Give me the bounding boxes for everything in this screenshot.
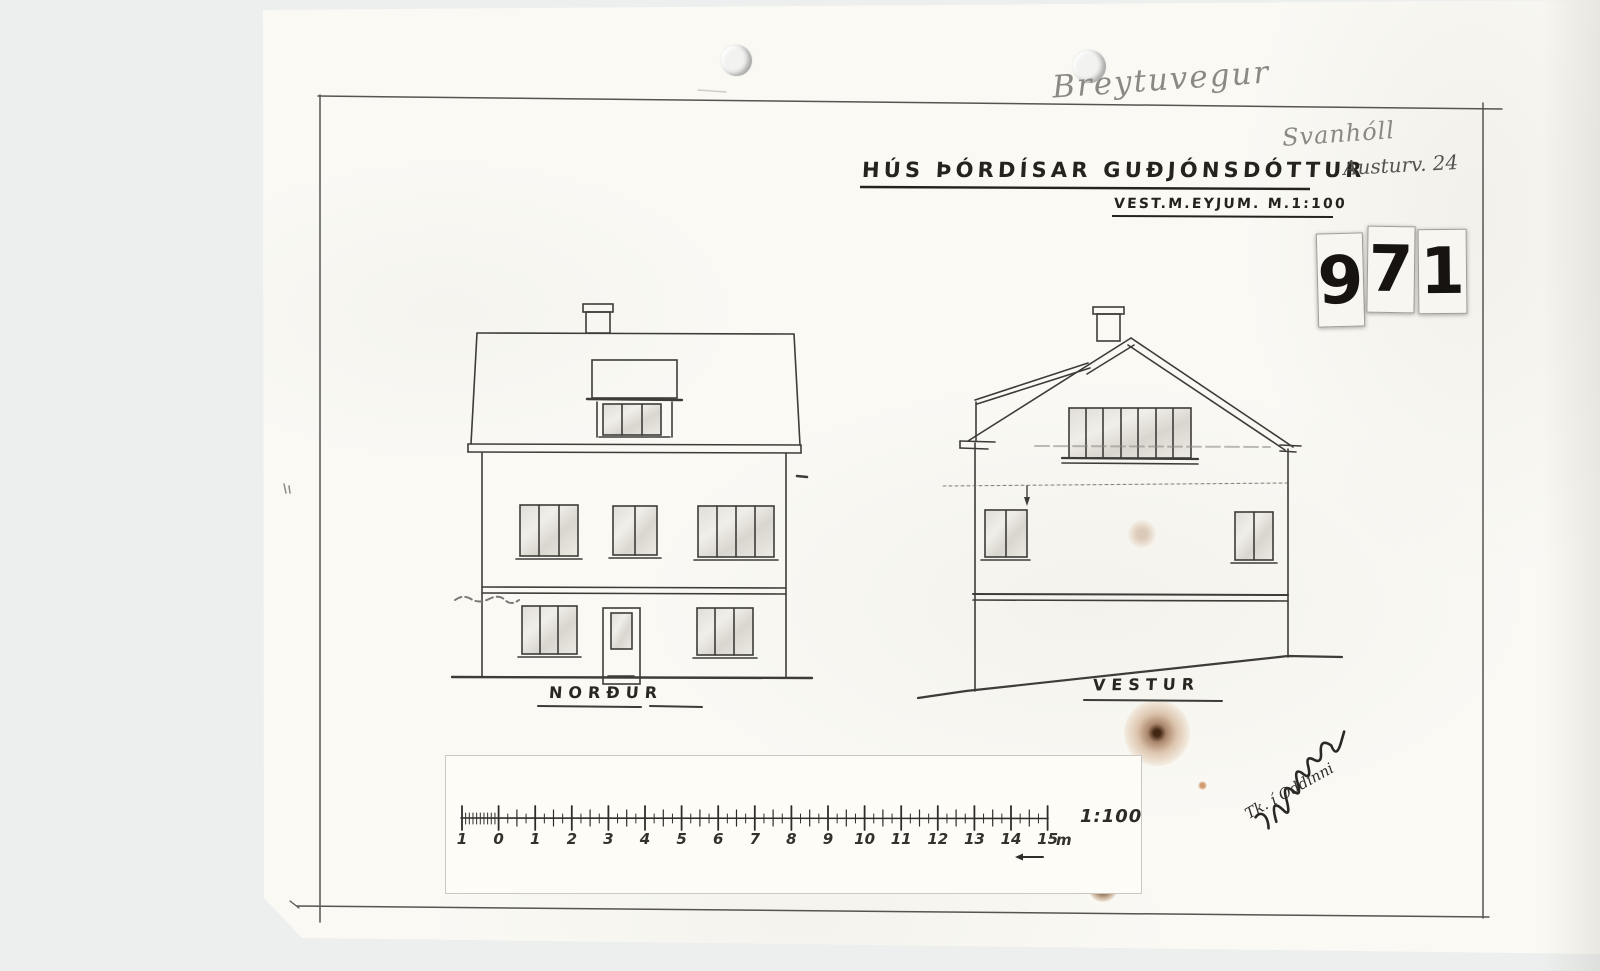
vestur-elevation-drawing bbox=[918, 307, 1342, 701]
sheet-digit: 1 bbox=[1418, 229, 1468, 315]
scale-ruler bbox=[461, 806, 1048, 861]
nordur-elevation-drawing bbox=[452, 304, 812, 707]
vestur-elevation-label: VESTUR bbox=[1092, 675, 1200, 695]
scale-ratio-label: 1:100 bbox=[1080, 806, 1142, 827]
scanned-drawing-page: HÚS ÞÓRDÍSAR GUÐJÓNSDÓTTUR VEST.M.EYJUM.… bbox=[0, 0, 1600, 971]
sheet-digit: 7 bbox=[1366, 226, 1415, 314]
sheet-number-971: 9 7 1 bbox=[1317, 226, 1467, 320]
drawing-frame bbox=[284, 90, 1502, 922]
sheet-digit: 9 bbox=[1316, 232, 1365, 327]
drawing-subtitle: VEST.M.EYJUM. M.1:100 bbox=[1114, 196, 1348, 212]
nordur-elevation-label: NORÐUR bbox=[548, 683, 663, 702]
drawing-title: HÚS ÞÓRDÍSAR GUÐJÓNSDÓTTUR bbox=[861, 158, 1366, 182]
scale-unit-label: m bbox=[1056, 831, 1072, 849]
